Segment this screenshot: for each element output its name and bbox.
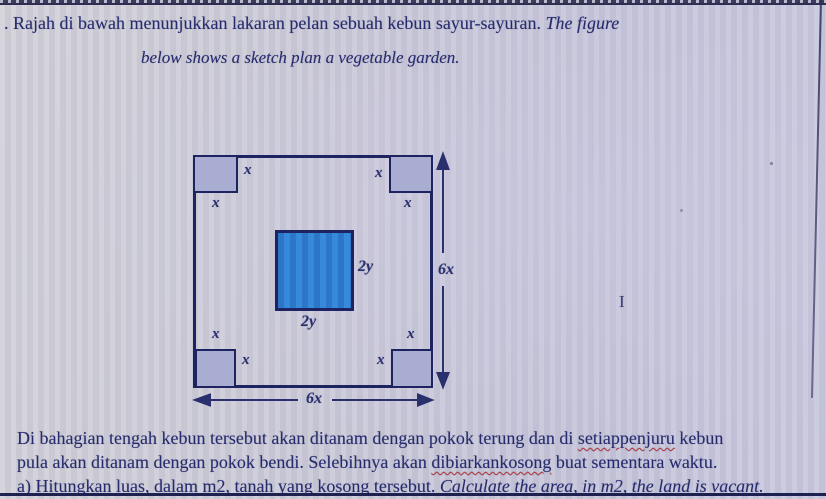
corner-label-bl-right: x [242, 352, 250, 369]
horizontal-arrow-right-head [418, 395, 432, 406]
center-label-right: 2y [358, 258, 373, 276]
body-text-line1: Di bahagian tengah kebun tersebut akan d… [17, 428, 723, 449]
side-label-horizontal: 6x [306, 390, 322, 408]
body-text-line1-post: kebun [675, 428, 724, 448]
body-text-line1-pre: Di bahagian tengah kebun tersebut akan d… [17, 428, 578, 448]
corner-square-top-left [193, 155, 238, 193]
misspelled-word-dibiarkankosong: dibiarkankosong [431, 452, 551, 472]
body-text-line2: pula akan ditanam dengan pokok bendi. Se… [17, 452, 717, 473]
corner-label-tr-below: x [404, 195, 412, 212]
center-label-below: 2y [301, 313, 316, 331]
corner-square-bottom-right [391, 349, 433, 388]
question-text-line1-malay: . Rajah di bawah menunjukkan lakaran pel… [4, 13, 545, 33]
bottom-table-border [0, 493, 826, 496]
body-text-line2-pre: pula akan ditanam dengan pokok bendi. Se… [17, 452, 431, 472]
corner-label-bl-above: x [212, 326, 220, 343]
dust-speck [680, 209, 683, 212]
corner-square-bottom-left [195, 349, 236, 388]
center-square [275, 230, 354, 311]
body-text-line2-post: buat sementara waktu. [551, 452, 717, 472]
horizontal-arrow-left-head [195, 395, 210, 406]
corner-label-tr-left: x [375, 165, 383, 182]
corner-label-tl-below: x [212, 195, 220, 212]
corner-label-br-left: x [377, 352, 385, 369]
vertical-arrow-up-head [438, 154, 449, 169]
question-text-line1-english: The figure [545, 13, 619, 33]
text-cursor: I [619, 292, 625, 312]
corner-label-br-above: x [407, 326, 415, 343]
misspelled-word-setiappenjuru: setiappenjuru [578, 428, 675, 448]
side-label-vertical: 6x [438, 261, 454, 279]
corner-square-top-right [389, 155, 433, 193]
corner-label-tl-right: x [244, 162, 252, 179]
vertical-arrow-down-head [438, 373, 449, 387]
top-table-border [0, 0, 826, 5]
dust-speck [770, 162, 773, 165]
question-text-line1: . Rajah di bawah menunjukkan lakaran pel… [4, 13, 619, 34]
right-page-border-line [811, 0, 822, 398]
worksheet-page: { "header": { "line1_malay": ". Rajah di… [0, 0, 826, 499]
question-text-line2-english: below shows a sketch plan a vegetable ga… [141, 48, 460, 68]
